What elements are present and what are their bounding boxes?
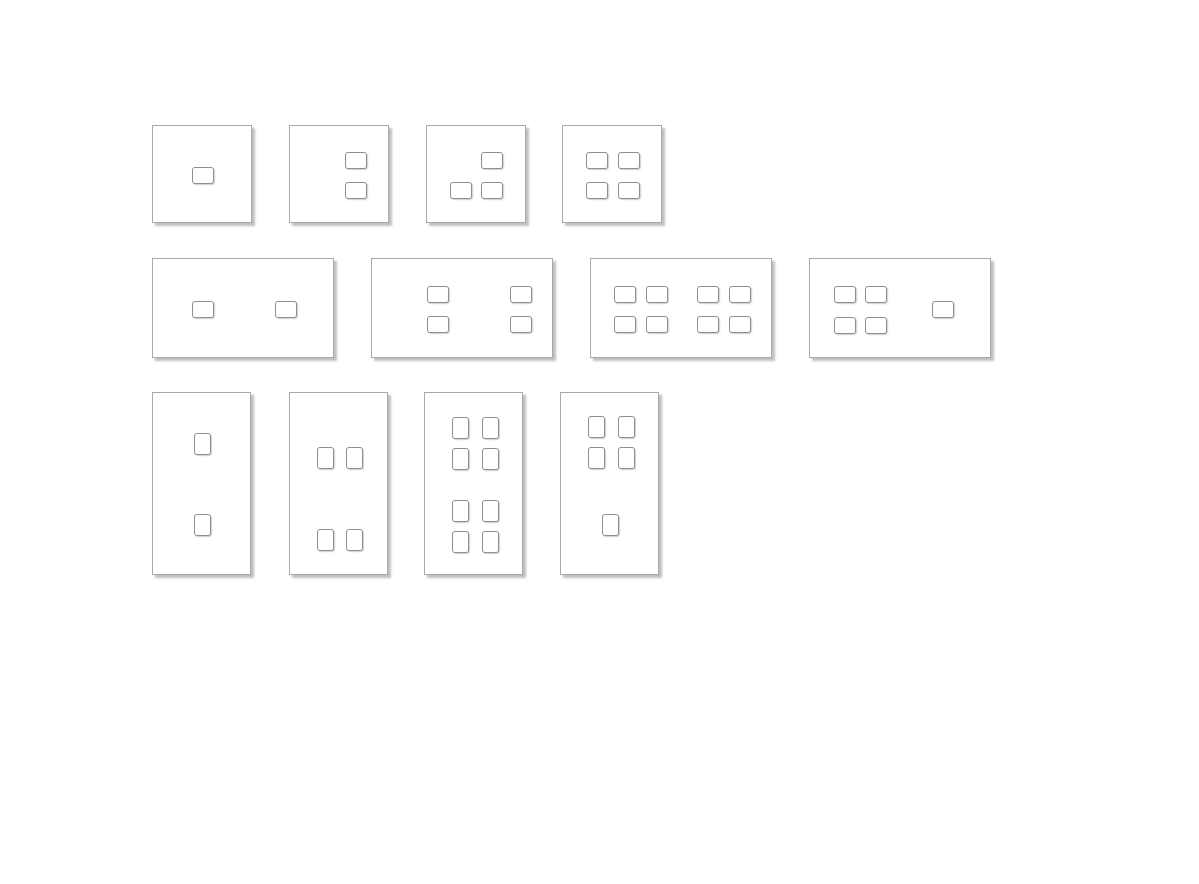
switch-button xyxy=(194,433,211,455)
plate-tall-2-buttons xyxy=(152,392,251,575)
switch-button xyxy=(427,286,449,303)
switch-button xyxy=(834,317,856,334)
switch-button xyxy=(697,316,719,333)
switch-button xyxy=(346,447,363,469)
switch-button xyxy=(510,286,532,303)
plate-tall-5-buttons xyxy=(560,392,659,575)
switch-button xyxy=(275,301,297,318)
switch-button xyxy=(450,182,472,199)
switch-button xyxy=(481,182,503,199)
plate-square-4-buttons xyxy=(562,125,662,223)
switch-button xyxy=(427,316,449,333)
switch-button xyxy=(646,286,668,303)
switch-button xyxy=(317,529,334,551)
switch-button xyxy=(482,500,499,522)
switch-button xyxy=(586,182,608,199)
plate-wide-4-buttons xyxy=(371,258,553,358)
plate-tall-8-buttons xyxy=(424,392,523,575)
switch-button xyxy=(865,317,887,334)
switch-button xyxy=(345,152,367,169)
plate-wide-2-buttons xyxy=(152,258,334,358)
switch-button xyxy=(482,417,499,439)
switch-button xyxy=(618,416,635,438)
switch-button xyxy=(482,448,499,470)
canvas xyxy=(0,0,1199,884)
switch-button xyxy=(729,316,751,333)
plate-square-3-buttons xyxy=(426,125,526,223)
switch-button xyxy=(602,514,619,536)
switch-button xyxy=(482,531,499,553)
switch-button xyxy=(192,301,214,318)
plate-tall-4-buttons xyxy=(289,392,388,575)
switch-button xyxy=(588,416,605,438)
switch-button xyxy=(452,448,469,470)
switch-button xyxy=(614,286,636,303)
switch-button xyxy=(586,152,608,169)
switch-button xyxy=(618,447,635,469)
switch-button xyxy=(452,531,469,553)
switch-button xyxy=(865,286,887,303)
switch-button xyxy=(345,182,367,199)
switch-button xyxy=(618,182,640,199)
switch-button xyxy=(192,167,214,184)
switch-button xyxy=(618,152,640,169)
switch-button xyxy=(614,316,636,333)
switch-button xyxy=(346,529,363,551)
plate-square-2-buttons xyxy=(289,125,389,223)
switch-button xyxy=(510,316,532,333)
switch-button xyxy=(452,500,469,522)
switch-button xyxy=(697,286,719,303)
switch-button xyxy=(834,286,856,303)
switch-button xyxy=(729,286,751,303)
plate-wide-5-buttons xyxy=(809,258,991,358)
switch-button xyxy=(646,316,668,333)
plate-wide-8-buttons xyxy=(590,258,772,358)
switch-button xyxy=(452,417,469,439)
plate-square-1-button xyxy=(152,125,252,223)
switch-button xyxy=(194,514,211,536)
switch-button xyxy=(481,152,503,169)
switch-button xyxy=(588,447,605,469)
switch-button xyxy=(317,447,334,469)
switch-button xyxy=(932,301,954,318)
